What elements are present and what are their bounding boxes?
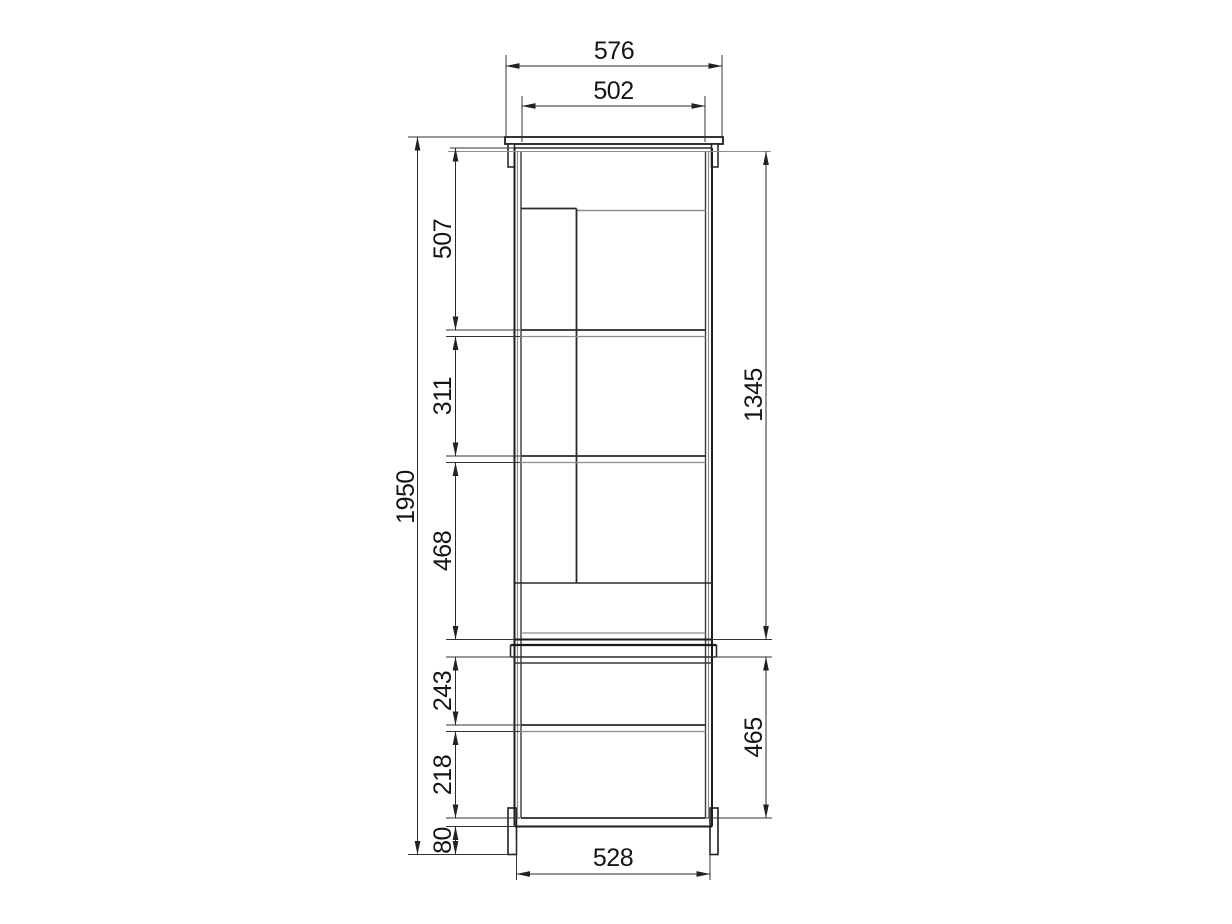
dim-lower-section-height: 465 xyxy=(740,657,768,818)
extension-lines xyxy=(408,55,772,880)
dim-label-top-board-width: 576 xyxy=(594,37,634,65)
dim-lower-opening-2: 218 xyxy=(429,732,457,819)
dim-label-upper-section-height: 1345 xyxy=(740,368,768,422)
waist-molding xyxy=(511,633,717,663)
dim-upper-section-height: 1345 xyxy=(740,152,768,640)
lower-section xyxy=(515,725,713,827)
dim-label-upper-opening-3: 468 xyxy=(429,531,457,571)
drawing-canvas: 576 502 1950 507 311 468 243 218 xyxy=(0,0,1232,924)
dim-label-lower-opening-2: 218 xyxy=(429,755,457,795)
dim-upper-opening-2: 311 xyxy=(429,337,457,457)
right-side-panel xyxy=(706,148,713,827)
dim-label-base-width: 528 xyxy=(593,844,633,872)
dim-label-upper-opening-1: 507 xyxy=(429,219,457,259)
dim-top-board-width: 576 xyxy=(506,37,722,66)
dim-overall-height: 1950 xyxy=(392,137,420,855)
dim-label-upper-opening-2: 311 xyxy=(429,377,457,415)
dim-plinth-height: 80 xyxy=(429,827,457,855)
dim-base-width: 528 xyxy=(517,844,711,874)
dim-interior-width: 502 xyxy=(522,77,705,106)
top-board xyxy=(505,137,723,144)
cabinet-dimension-drawing: 576 502 1950 507 311 468 243 218 xyxy=(0,0,1232,924)
upper-section xyxy=(515,209,713,584)
dim-label-overall-height: 1950 xyxy=(392,470,420,524)
dim-upper-opening-3: 468 xyxy=(429,463,457,640)
dim-label-lower-opening-1: 243 xyxy=(429,671,457,711)
dim-label-plinth-height: 80 xyxy=(429,827,457,854)
dim-lower-opening-1: 243 xyxy=(429,657,457,725)
dim-label-lower-section-height: 465 xyxy=(740,717,768,757)
cabinet-outline xyxy=(448,137,771,855)
dim-upper-opening-1: 507 xyxy=(429,148,457,330)
dim-label-interior-width: 502 xyxy=(593,77,633,105)
